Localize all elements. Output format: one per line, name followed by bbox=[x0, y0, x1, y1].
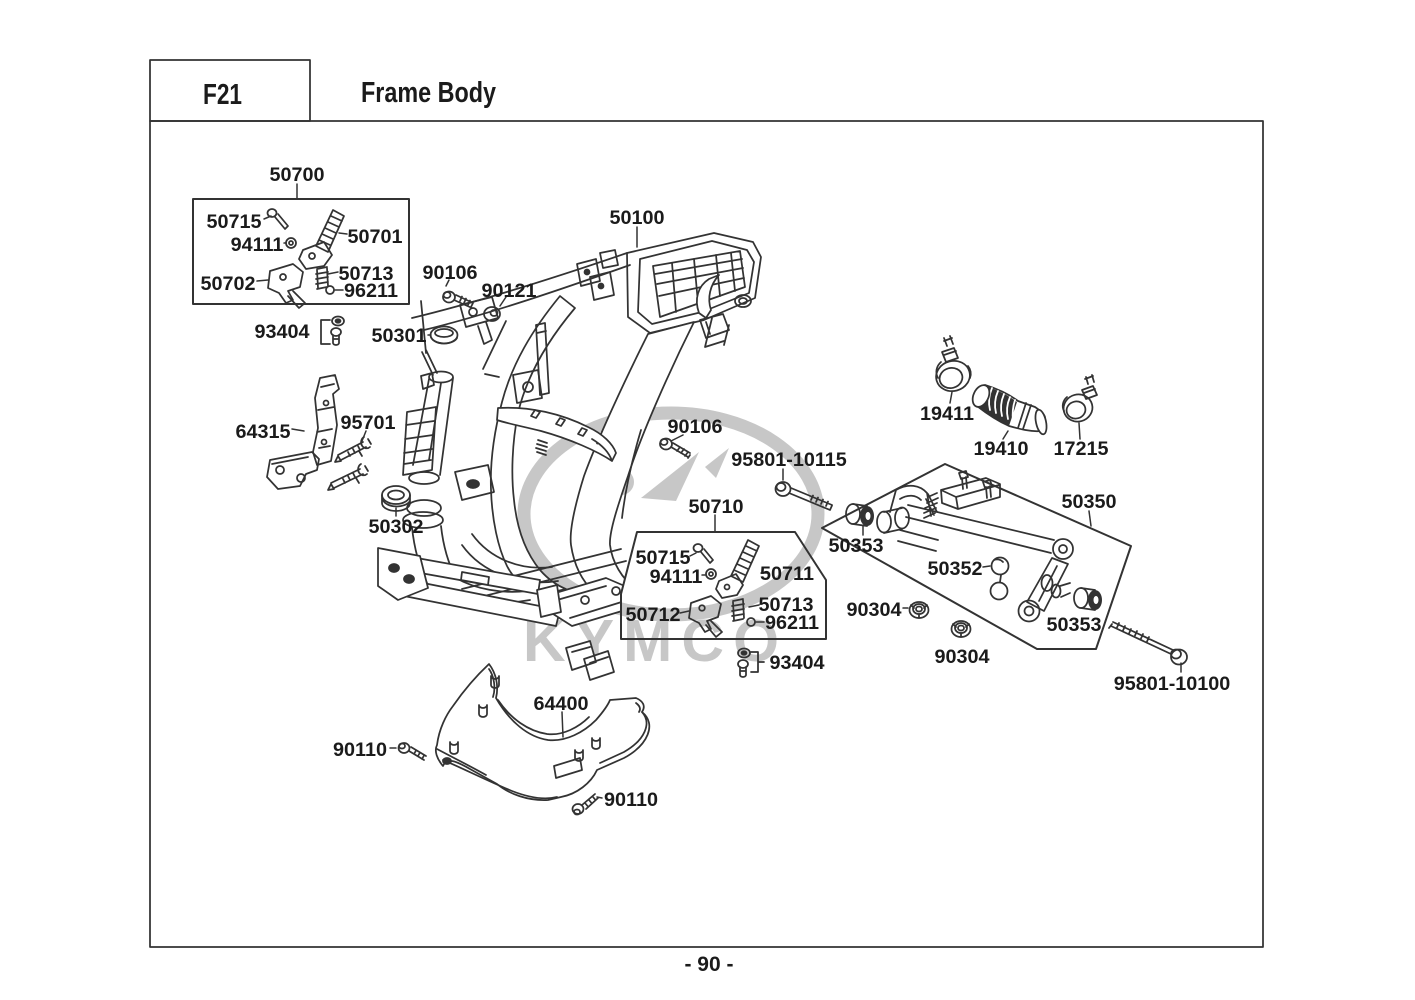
svg-text:50350: 50350 bbox=[1061, 491, 1116, 513]
svg-text:64400: 64400 bbox=[533, 693, 588, 715]
svg-text:50353: 50353 bbox=[1046, 614, 1101, 636]
svg-text:50702: 50702 bbox=[200, 273, 255, 295]
svg-text:19410: 19410 bbox=[973, 438, 1028, 460]
svg-text:95801-10100: 95801-10100 bbox=[1114, 673, 1231, 695]
svg-text:90110: 90110 bbox=[604, 789, 658, 811]
svg-text:50353: 50353 bbox=[828, 535, 883, 557]
svg-text:90106: 90106 bbox=[422, 262, 477, 284]
svg-text:50712: 50712 bbox=[625, 604, 680, 626]
svg-text:50710: 50710 bbox=[688, 496, 743, 518]
svg-text:94111: 94111 bbox=[231, 234, 284, 256]
svg-text:19411: 19411 bbox=[920, 403, 974, 425]
svg-text:50301: 50301 bbox=[371, 325, 426, 347]
svg-text:Frame Body: Frame Body bbox=[361, 77, 496, 109]
svg-text:50711: 50711 bbox=[760, 563, 814, 585]
svg-text:90304: 90304 bbox=[934, 646, 989, 668]
svg-text:95701: 95701 bbox=[340, 412, 395, 434]
svg-text:64315: 64315 bbox=[235, 421, 290, 443]
svg-text:50352: 50352 bbox=[927, 558, 982, 580]
svg-text:90304: 90304 bbox=[846, 599, 901, 621]
svg-text:90106: 90106 bbox=[667, 416, 722, 438]
svg-text:93404: 93404 bbox=[254, 321, 309, 343]
svg-text:50715: 50715 bbox=[206, 211, 261, 233]
svg-text:F21: F21 bbox=[203, 79, 242, 111]
svg-text:96211: 96211 bbox=[765, 612, 819, 634]
svg-text:90110: 90110 bbox=[333, 739, 387, 761]
svg-text:50302: 50302 bbox=[368, 516, 423, 538]
svg-text:17215: 17215 bbox=[1053, 438, 1108, 460]
svg-text:90121: 90121 bbox=[481, 280, 536, 302]
svg-text:50100: 50100 bbox=[609, 207, 664, 229]
svg-text:96211: 96211 bbox=[344, 280, 398, 302]
svg-text:50701: 50701 bbox=[347, 226, 402, 248]
svg-text:93404: 93404 bbox=[769, 652, 824, 674]
svg-text:- 90 -: - 90 - bbox=[684, 953, 733, 976]
svg-text:50700: 50700 bbox=[269, 164, 324, 186]
svg-text:94111: 94111 bbox=[650, 566, 703, 588]
svg-text:95801-10115: 95801-10115 bbox=[731, 449, 847, 471]
